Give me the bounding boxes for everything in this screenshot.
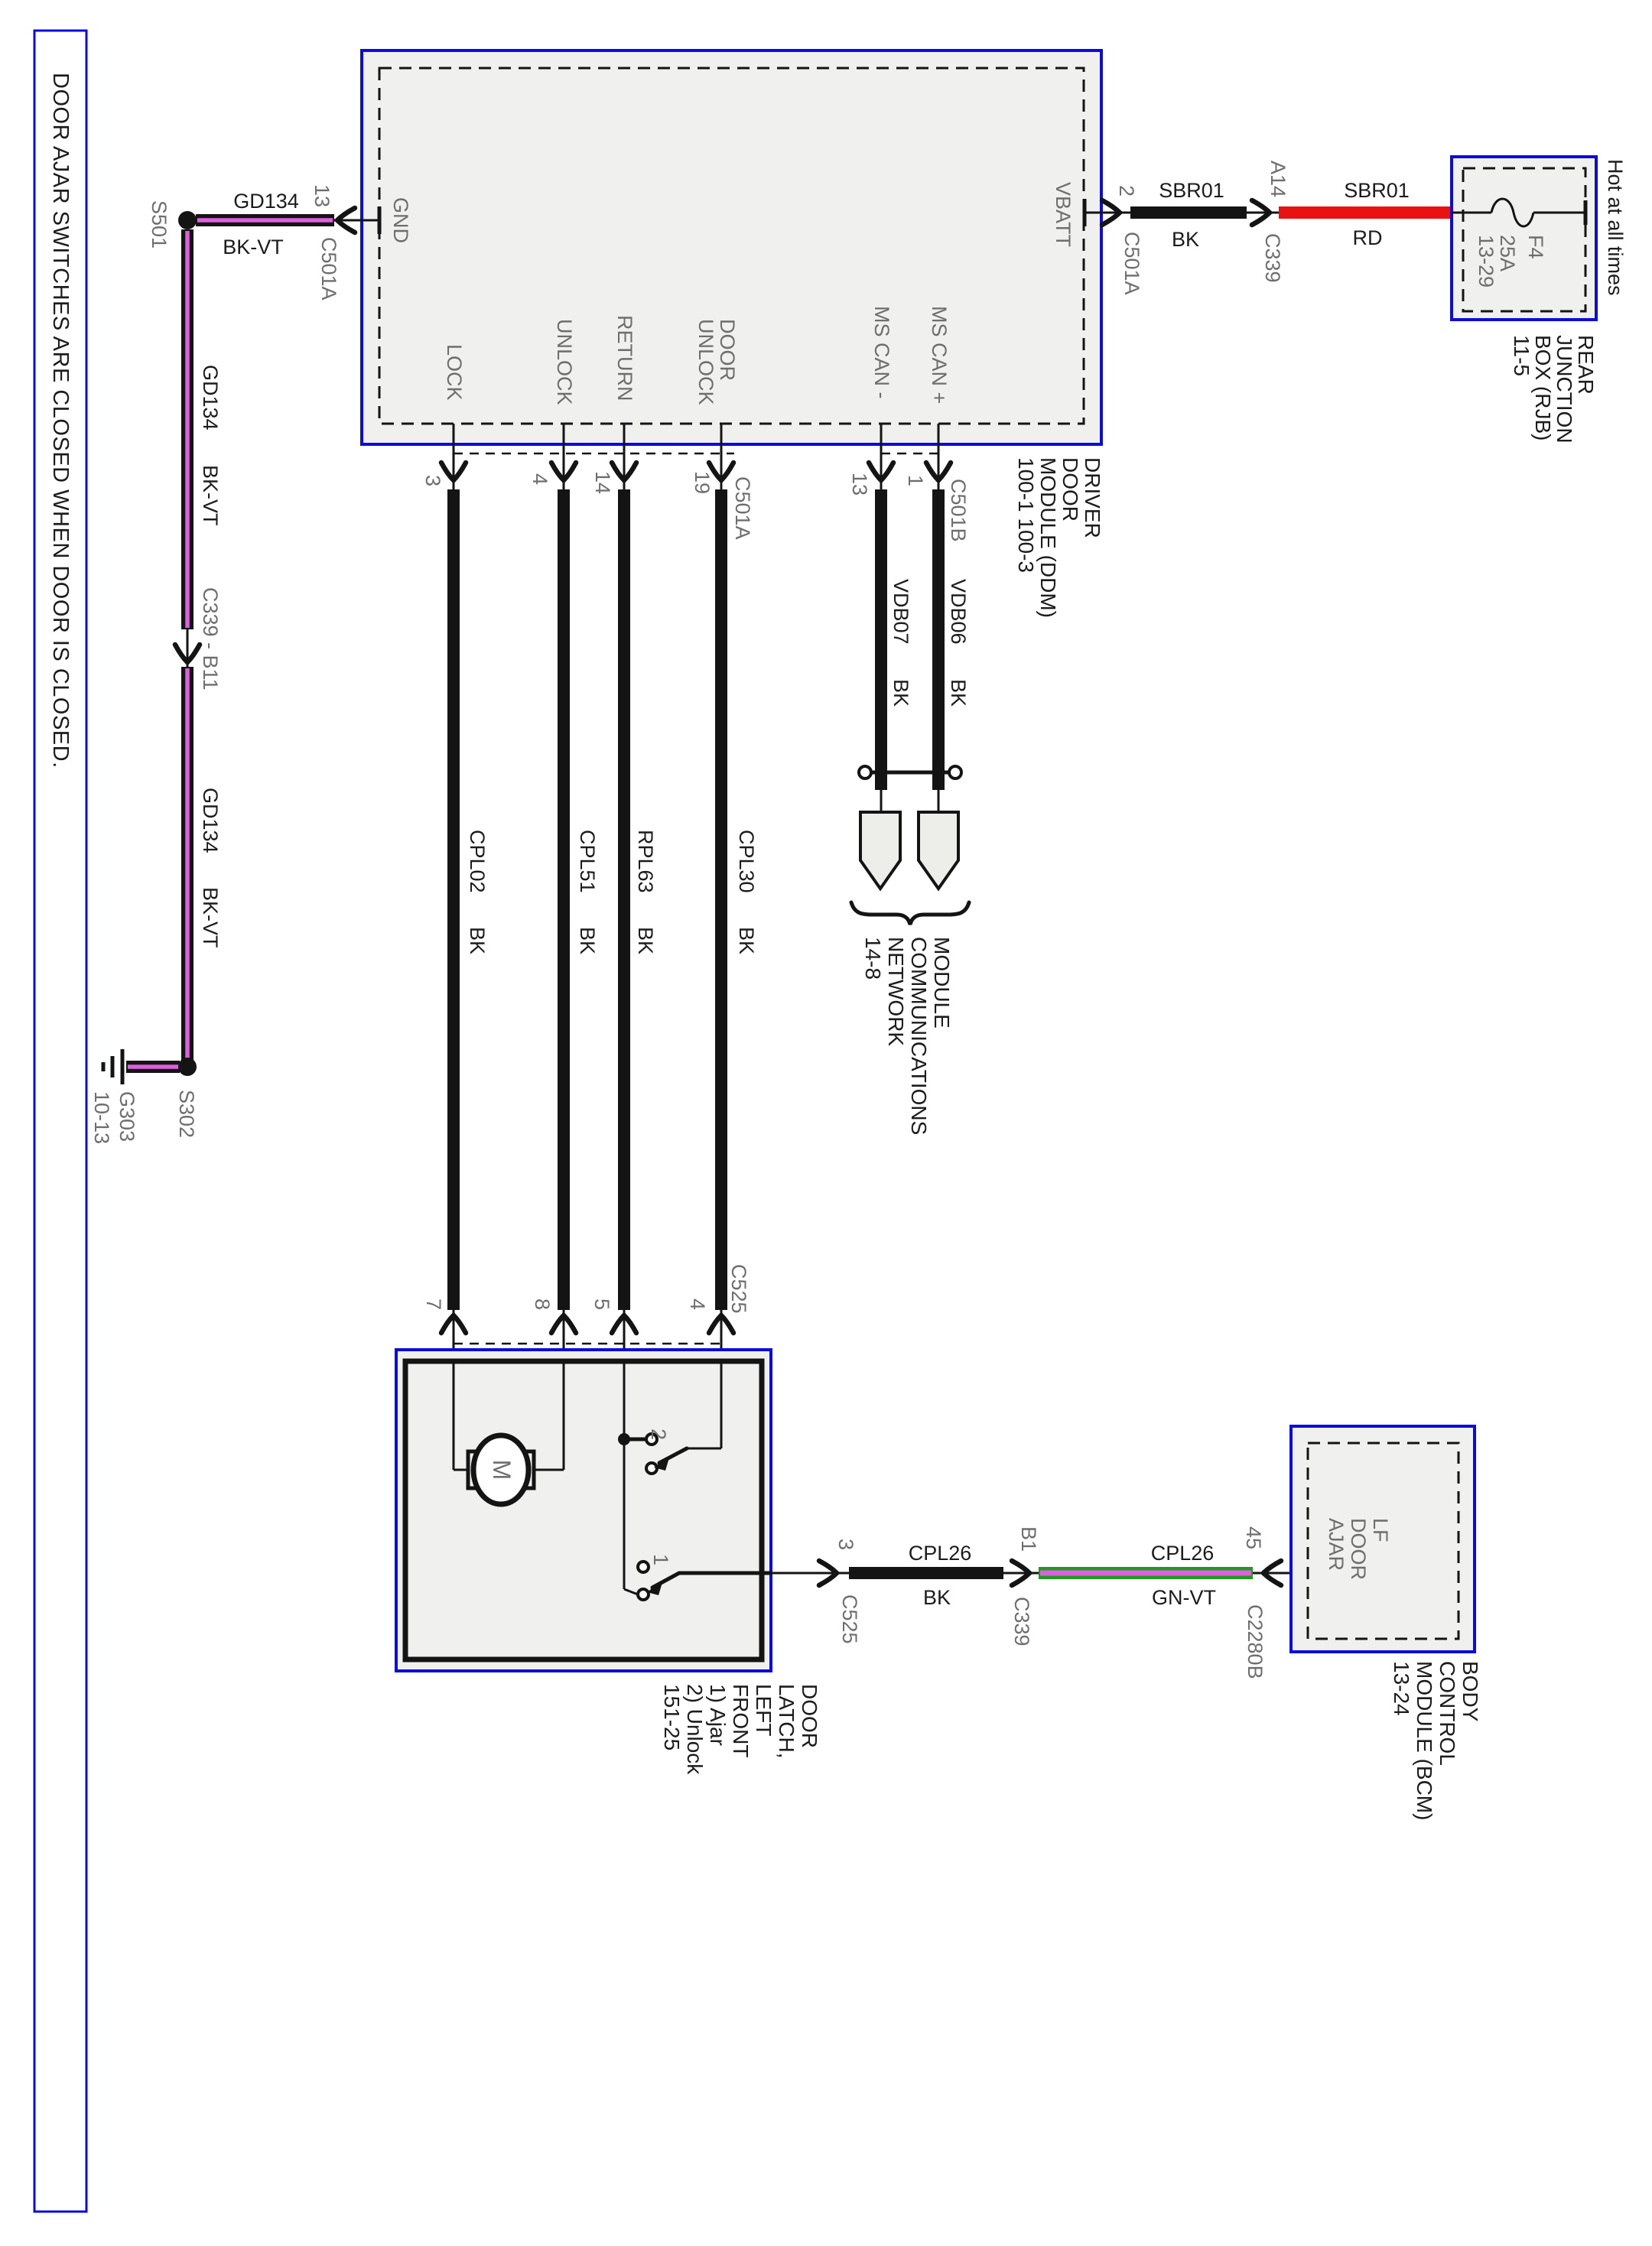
can-caption-line: NETWORK xyxy=(884,937,908,1046)
wire-gd134-top-color: BK-VT xyxy=(223,236,284,258)
pin-2-label: 2 xyxy=(1115,185,1138,197)
vbatt-branch: 2 C501A SBR01 BK A14 C339 SBR01 RD xyxy=(1085,161,1452,295)
fuse-ref-label: 13-29 xyxy=(1475,235,1498,288)
ddm-terminal-vbatt: VBATT xyxy=(1052,182,1075,247)
pin-3-out-label: 3 xyxy=(834,1539,857,1550)
rjb-box: F4 25A 13-29 Hot at all times REAR JUNCT… xyxy=(1452,157,1627,444)
ground-g303-label: G303 xyxy=(115,1091,138,1142)
wire-cpl30-label: CPL30 xyxy=(735,830,758,893)
wire-cpl26-gnvt-color: GN-VT xyxy=(1152,1586,1216,1609)
can-network: VDB07 BK VDB06 BK 13 1 C501B MODULE COMM… xyxy=(848,424,970,1135)
bcm-caption-line: CONTROL xyxy=(1436,1661,1459,1766)
switch-1-label: 1 xyxy=(649,1554,672,1565)
conn-c501b-label: C501B xyxy=(947,479,970,542)
ddm-terminal-lock: LOCK xyxy=(443,344,466,401)
conn-c2280b-label: C2280B xyxy=(1244,1604,1267,1679)
conn-c525-out-label: C525 xyxy=(838,1594,861,1644)
ajar-output: 3 C525 CPL26 BK B1 C339 CPL26 GN-VT 45 C… xyxy=(771,1526,1308,1679)
power-wires: 3 4 14 19 C501A CPL02 BK CPL51 BK RPL63 … xyxy=(421,424,758,1361)
note-banner: DOOR AJAR SWITCHES ARE CLOSED WHEN DOOR … xyxy=(34,31,86,2212)
bcm-terminal-line: DOOR xyxy=(1347,1518,1370,1580)
motor-label: M xyxy=(488,1460,515,1481)
wire-rpl63 xyxy=(612,424,636,1361)
pin-14-label: 14 xyxy=(591,471,614,494)
can-caption-line: COMMUNICATIONS xyxy=(907,937,931,1135)
wire-rpl63-color: BK xyxy=(634,927,657,954)
wire-vdb07-color: BK xyxy=(889,679,912,707)
ddm-caption: DRIVER DOOR MODULE (DDM) 100-1 100-3 xyxy=(1014,457,1104,618)
wire-cpl51-color: BK xyxy=(576,927,599,954)
latch-caption-line: 1) Ajar xyxy=(706,1684,730,1746)
conn-c339-b11-label: C339 - B11 xyxy=(199,587,222,691)
ddm-terminal-return: RETURN xyxy=(613,315,636,401)
wire-cpl02 xyxy=(441,424,466,1361)
conn-c339-out-label: C339 xyxy=(1010,1597,1033,1646)
wire-cpl51-label: CPL51 xyxy=(576,830,599,893)
splice-s302-dot xyxy=(178,1058,197,1076)
ddm-caption-line: 100-1 100-3 xyxy=(1014,457,1038,573)
splice-s501-label: S501 xyxy=(148,200,171,249)
splice-s501-dot xyxy=(178,211,197,229)
conn-c501a-vbatt-label: C501A xyxy=(1120,232,1143,295)
pin-7-label: 7 xyxy=(422,1299,445,1310)
wire-cpl02-color: BK xyxy=(466,927,489,954)
ground-icon xyxy=(103,1049,122,1084)
pin-13b-label: 13 xyxy=(848,473,871,496)
offpage-arrow-right xyxy=(919,812,958,889)
wiring-diagram: DOOR AJAR SWITCHES ARE CLOSED WHEN DOOR … xyxy=(0,0,1652,2242)
can-caption-line: 14-8 xyxy=(861,937,885,980)
switch-2-label: 2 xyxy=(647,1429,670,1440)
ddm-terminal-door-unlock: UNLOCK xyxy=(694,319,717,405)
rjb-caption: REAR JUNCTION BOX (RJB) 11-5 xyxy=(1510,335,1598,444)
latch-caption: DOOR LATCH, LEFT FRONT 1) Ajar 2) Unlock… xyxy=(660,1684,821,1775)
wire-cpl26-bk-color: BK xyxy=(923,1586,951,1609)
wire-gd134-drop2-color: BK-VT xyxy=(199,887,222,948)
conn-c525-top-label: C525 xyxy=(727,1264,750,1314)
pin-19-label: 19 xyxy=(691,471,714,494)
wire-cpl51 xyxy=(551,424,576,1361)
pin-4b-label: 4 xyxy=(686,1299,709,1310)
wire-cpl30-color: BK xyxy=(735,927,758,954)
pin-8-label: 8 xyxy=(531,1299,554,1310)
wire-sbr01-rd-color: RD xyxy=(1353,226,1383,249)
ddm-outer-box xyxy=(362,50,1101,444)
pin-13-label: 13 xyxy=(311,184,333,207)
wire-gd134-drop1-label: GD134 xyxy=(199,365,222,431)
wire-cpl26-bk-label: CPL26 xyxy=(909,1542,972,1565)
ground-ref-label: 10-13 xyxy=(90,1091,113,1144)
note-text: DOOR AJAR SWITCHES ARE CLOSED WHEN DOOR … xyxy=(48,73,73,769)
conn-c501a-gnd-label: C501A xyxy=(317,237,340,301)
conn-c339-label: C339 xyxy=(1261,233,1284,283)
rjb-caption-line: 11-5 xyxy=(1510,335,1533,376)
bcm-caption-line: 13-24 xyxy=(1390,1661,1413,1716)
offpage-arrow-left xyxy=(860,812,900,889)
latch-caption-line: 151-25 xyxy=(660,1684,684,1750)
wire-vdb07-label: VDB07 xyxy=(889,579,912,645)
wire-gd134-drop1-color: BK-VT xyxy=(199,465,222,526)
rjb-caption-line: BOX (RJB) xyxy=(1531,335,1555,440)
hot-at-all-times-label: Hot at all times xyxy=(1604,159,1627,296)
wire-cpl30 xyxy=(709,424,733,1361)
latch-caption-line: FRONT xyxy=(729,1684,753,1757)
wire-gd134-top-label: GD134 xyxy=(233,190,299,213)
ddm-terminal-door: DOOR xyxy=(716,319,739,381)
can-caption-line: MODULE xyxy=(930,937,954,1029)
pin-4-label: 4 xyxy=(528,473,551,485)
wire-gd134-drop2-label: GD134 xyxy=(199,788,222,853)
wire-cpl02-label: CPL02 xyxy=(466,830,489,893)
pin-45-label: 45 xyxy=(1242,1526,1265,1549)
pin-1-label: 1 xyxy=(904,475,927,486)
pin-b1-label: B1 xyxy=(1017,1526,1040,1552)
latch-caption-line: LEFT xyxy=(752,1684,776,1736)
fuse-name-label: F4 xyxy=(1524,235,1547,259)
ground-drop: GD134 BK-VT C339 - B11 GD134 BK-VT S302 … xyxy=(90,229,222,1144)
bcm-terminal-line: LF xyxy=(1369,1518,1392,1542)
twisted-pair-clamp xyxy=(859,766,961,778)
pin-5-label: 5 xyxy=(590,1299,613,1310)
door-latch-box: M 2 1 DOOR LA xyxy=(396,1350,821,1775)
ddm-caption-line: DRIVER xyxy=(1081,457,1104,538)
wiring-diagram-page: DOOR AJAR SWITCHES ARE CLOSED WHEN DOOR … xyxy=(0,0,1652,2242)
latch-caption-line: DOOR xyxy=(798,1684,821,1748)
can-caption: MODULE COMMUNICATIONS NETWORK 14-8 xyxy=(861,937,954,1135)
wire-cpl26-gnvt-label: CPL26 xyxy=(1151,1542,1215,1565)
bcm-terminal-line: AJAR xyxy=(1325,1518,1348,1571)
bcm-box: LF DOOR AJAR BODY CONTROL MODULE (BCM) 1… xyxy=(1291,1426,1482,1820)
wire-sbr01-bk-color: BK xyxy=(1172,228,1199,251)
splice-s302-label: S302 xyxy=(175,1090,198,1138)
ddm-caption-line: DOOR xyxy=(1059,457,1082,522)
wire-sbr01-bk-label: SBR01 xyxy=(1159,179,1224,202)
wire-vdb06-color: BK xyxy=(947,679,970,707)
ddm-terminal-gnd: GND xyxy=(389,197,412,243)
ddm-terminal-ms-can-minus: MS CAN - xyxy=(870,306,893,399)
pin-3-label: 3 xyxy=(421,475,444,486)
latch-caption-line: 2) Unlock xyxy=(683,1684,707,1775)
rjb-caption-line: REAR xyxy=(1574,335,1598,395)
pin-a14-label: A14 xyxy=(1267,161,1289,197)
rjb-caption-line: JUNCTION xyxy=(1553,335,1576,444)
wire-rpl63-label: RPL63 xyxy=(634,830,657,893)
bcm-caption: BODY CONTROL MODULE (BCM) 13-24 xyxy=(1390,1661,1482,1820)
wire-vdb06-label: VDB06 xyxy=(947,579,970,645)
brace-icon xyxy=(851,902,969,925)
fuse-rating-label: 25A xyxy=(1496,235,1519,271)
rjb-outer-box xyxy=(1452,157,1596,320)
ddm-caption-line: MODULE (DDM) xyxy=(1036,457,1060,618)
bcm-caption-line: BODY xyxy=(1459,1661,1482,1722)
wire-sbr01-rd-label: SBR01 xyxy=(1344,179,1410,202)
ddm-terminal-unlock: UNLOCK xyxy=(553,319,576,405)
ddm-terminal-ms-can-plus: MS CAN + xyxy=(928,306,951,404)
conn-c501a-bottom-label: C501A xyxy=(731,476,754,540)
bcm-caption-line: MODULE (BCM) xyxy=(1413,1661,1436,1820)
latch-caption-line: LATCH, xyxy=(775,1684,798,1759)
